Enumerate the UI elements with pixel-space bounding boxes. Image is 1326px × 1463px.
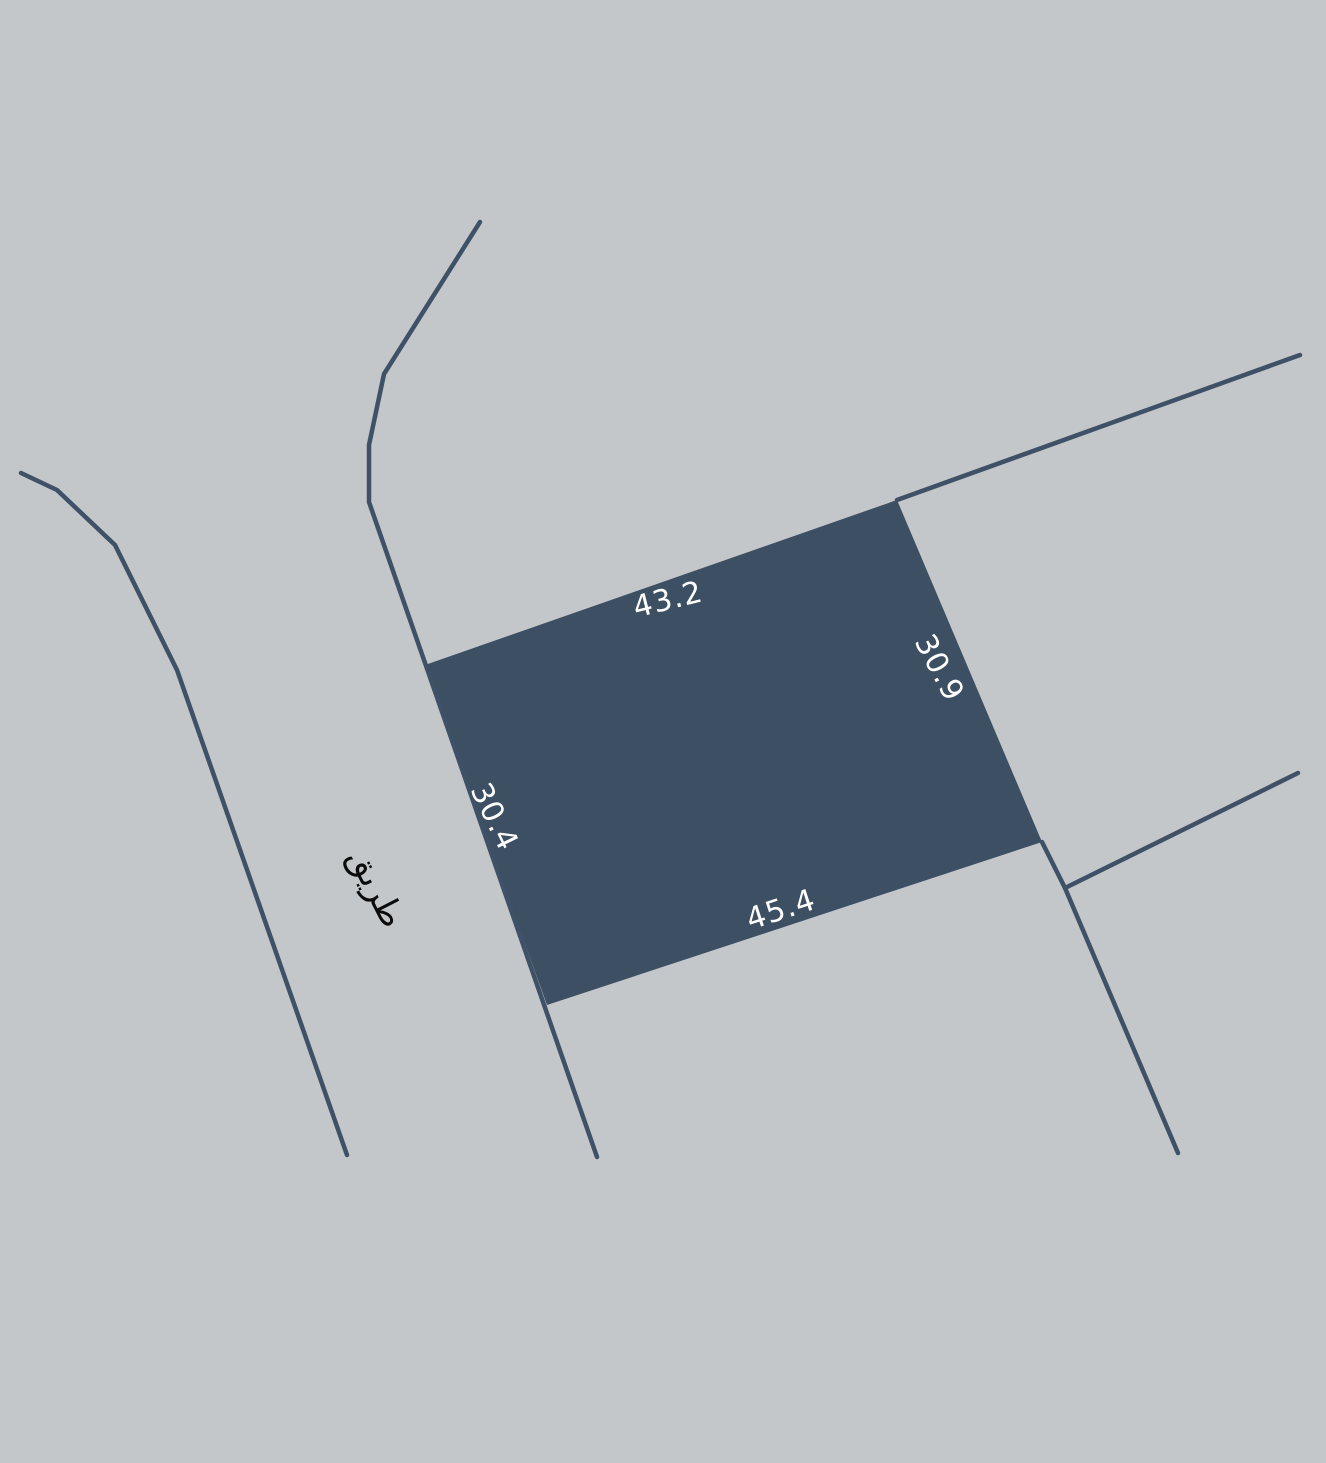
cadastral-map: 43.2 30.9 30.4 45.4 طريق [0,0,1326,1463]
